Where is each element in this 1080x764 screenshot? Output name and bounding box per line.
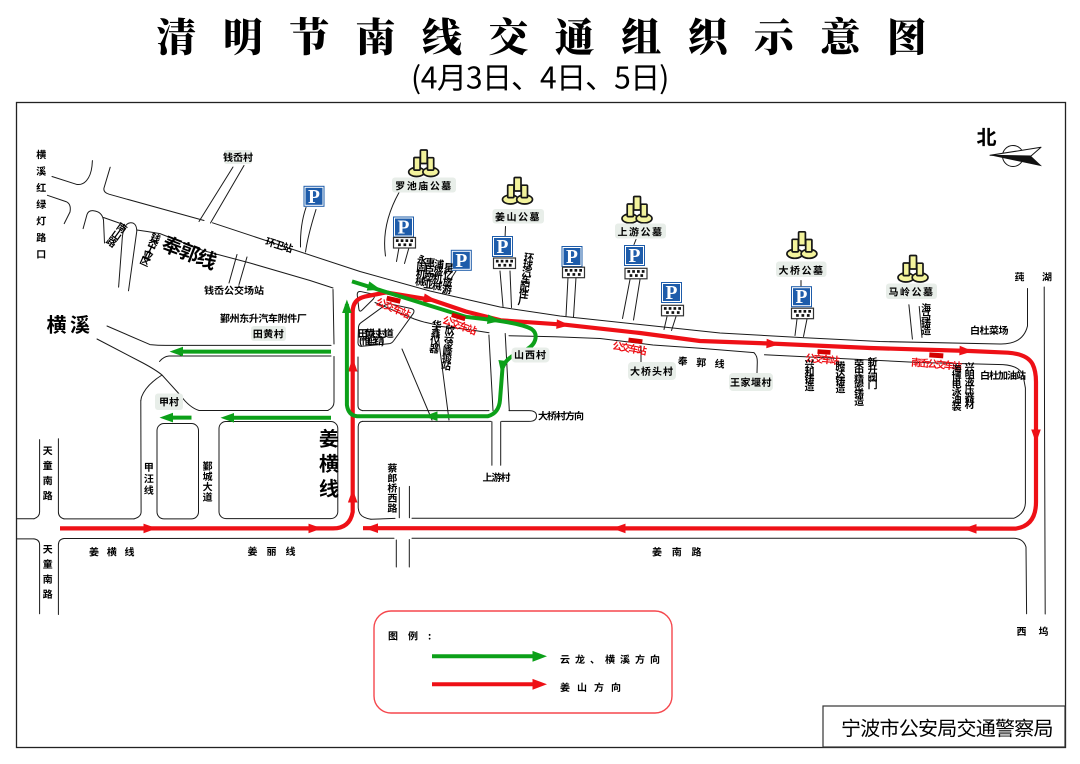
svg-text:P: P — [497, 237, 509, 258]
svg-text:P: P — [398, 218, 410, 239]
svg-text:P: P — [666, 283, 678, 304]
svg-text:P: P — [629, 246, 641, 267]
svg-text:P: P — [566, 247, 578, 268]
svg-text:P: P — [308, 187, 320, 208]
svg-text:P: P — [455, 251, 467, 272]
svg-text:P: P — [796, 287, 808, 308]
